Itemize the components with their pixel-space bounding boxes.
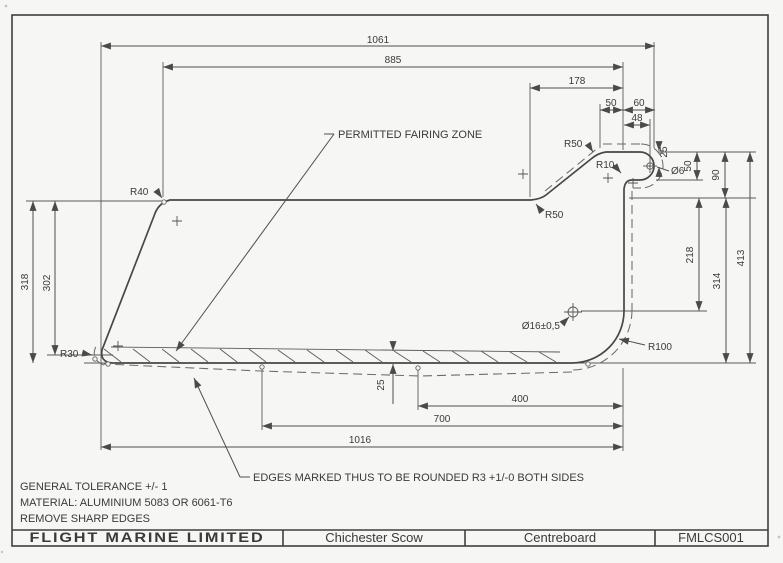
drawing-border: [12, 15, 768, 546]
fairing-zone-label: PERMITTED FAIRING ZONE: [338, 129, 482, 141]
dim-left-tip-depth: 302: [42, 274, 53, 291]
label-r50-bottom: R50: [545, 210, 564, 221]
dim-overall-length: 1061: [367, 35, 390, 46]
label-pivot-hole: Ø16±0,5: [522, 321, 561, 332]
tangent-markers: [93, 200, 590, 370]
fairing-zone-callout: PERMITTED FAIRING ZONE: [176, 129, 482, 351]
extension-lines: [26, 42, 756, 451]
title-boat: Chichester Scow: [325, 530, 423, 545]
dim-head-48: 48: [631, 113, 643, 124]
dim-left-depth: 318: [20, 273, 31, 290]
dim-top-edge-length: 885: [385, 55, 402, 66]
dim-top-edge-to-hole: 218: [685, 246, 696, 263]
label-r50-top: R50: [564, 139, 583, 150]
hole-callouts: Ø6 Ø16±0,5: [522, 166, 685, 332]
dim-bottom-1016: 1016: [349, 435, 372, 446]
label-r30: R30: [60, 349, 79, 360]
fairing-hatch-band: [104, 347, 560, 362]
dim-head-to-top-edge: 90: [711, 169, 722, 181]
note-sharp-edges: REMOVE SHARP EDGES: [20, 513, 150, 525]
dim-fairing-thickness: 25: [376, 379, 387, 391]
dim-head-thickness: 50: [683, 160, 694, 172]
title-drawing-number: FMLCS001: [678, 530, 744, 545]
dim-head-60: 60: [633, 98, 645, 109]
label-r40: R40: [130, 187, 149, 198]
title-block: FLIGHT MARINE LIMITED Chichester Scow Ce…: [12, 530, 768, 546]
label-r100: R100: [648, 342, 672, 353]
dim-bottom-400: 400: [512, 394, 529, 405]
pivot-hole: [564, 303, 582, 321]
dim-head-50: 50: [605, 98, 617, 109]
dim-head-setback: 178: [569, 76, 586, 87]
general-notes: GENERAL TOLERANCE +/- 1 MATERIAL: ALUMIN…: [20, 481, 233, 525]
scanned-drawing-page: 1061 885 178 50 60 48 400 700 1016 318 3…: [0, 0, 783, 563]
label-r10: R10: [596, 160, 615, 171]
scan-artifacts: [1, 5, 781, 554]
edge-note-label: EDGES MARKED THUS TO BE ROUNDED R3 +1/-0…: [253, 472, 584, 484]
dim-overall-depth: 413: [736, 249, 747, 266]
centreboard-outline: [102, 152, 654, 363]
radius-callouts: R40 R30 R50 R50 R10 R100: [60, 139, 672, 360]
note-tolerance: GENERAL TOLERANCE +/- 1: [20, 481, 167, 493]
dim-head-hole-offset: 25: [659, 146, 670, 158]
note-material: MATERIAL: ALUMINIUM 5083 OR 6061-T6: [20, 497, 233, 509]
dim-bottom-700: 700: [434, 414, 451, 425]
engineering-drawing: 1061 885 178 50 60 48 400 700 1016 318 3…: [0, 0, 783, 563]
fairing-zone-dashed-outline: [94, 144, 663, 376]
title-part: Centreboard: [524, 530, 596, 545]
vertical-dimensions: [33, 142, 750, 404]
label-head-hole: Ø6: [671, 166, 685, 177]
dim-top-to-bottom-right: 314: [712, 272, 723, 289]
company-logo: FLIGHT MARINE LIMITED: [30, 530, 265, 545]
head-hole: [643, 159, 657, 173]
